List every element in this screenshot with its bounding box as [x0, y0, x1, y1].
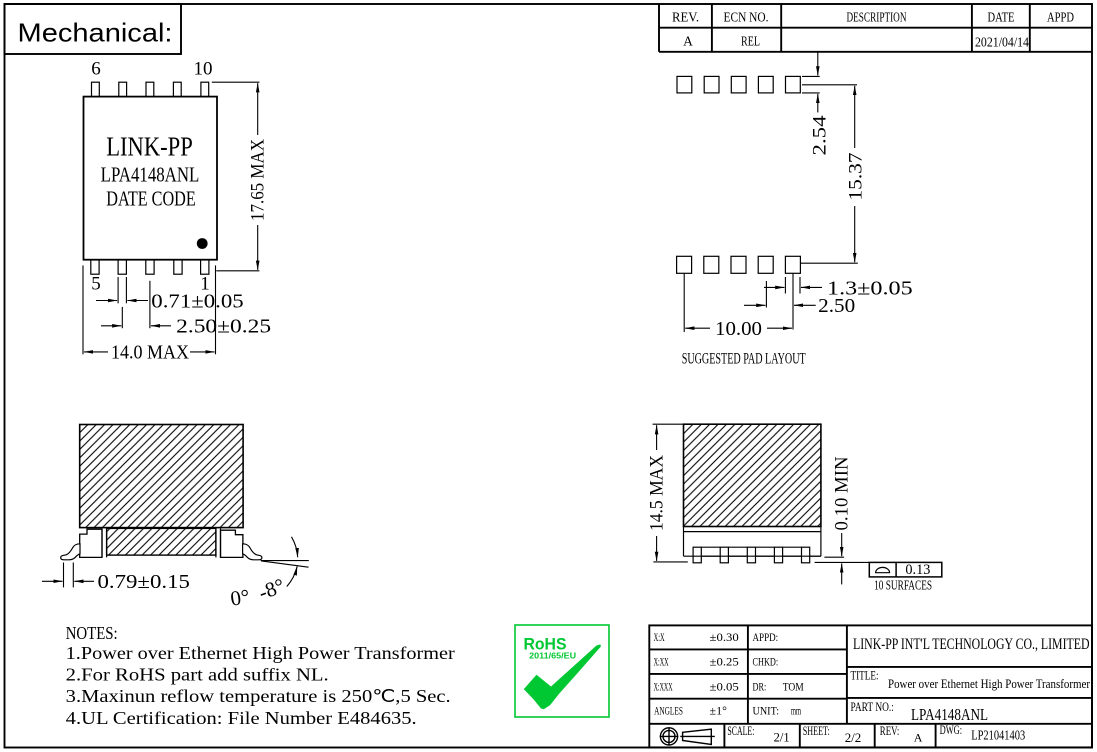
svg-text:LPA4148ANL: LPA4148ANL: [101, 163, 200, 187]
svg-text:14.0 MAX: 14.0 MAX: [111, 341, 189, 363]
svg-text:SCALE:: SCALE:: [727, 724, 754, 738]
svg-text:17.65 MAX: 17.65 MAX: [248, 139, 269, 221]
svg-text:2.50: 2.50: [818, 295, 855, 317]
svg-text:LINK-PP INT'L TECHNOLOGY CO.,: LINK-PP INT'L TECHNOLOGY CO., LIMITED: [853, 636, 1090, 653]
svg-text:2021/04/14: 2021/04/14: [975, 35, 1029, 50]
svg-text:LP21041403: LP21041403: [971, 728, 1025, 743]
svg-text:CHKD:: CHKD:: [753, 655, 779, 669]
svg-text:UNIT:: UNIT:: [753, 703, 780, 717]
svg-text:X:XX: X:XX: [654, 655, 669, 669]
svg-text:10: 10: [194, 59, 213, 80]
svg-text:DATE: DATE: [988, 10, 1015, 25]
svg-text:14.5 MAX: 14.5 MAX: [647, 455, 668, 531]
svg-text:TOM: TOM: [783, 680, 804, 694]
svg-text:5: 5: [91, 274, 101, 295]
svg-text:±0.05: ±0.05: [710, 680, 739, 694]
svg-text:2/1: 2/1: [774, 729, 790, 744]
svg-text:±1°: ±1°: [710, 703, 728, 717]
svg-text:SUGGESTED PAD LAYOUT: SUGGESTED PAD LAYOUT: [682, 351, 806, 368]
svg-text:DR:: DR:: [753, 680, 767, 694]
svg-text:0.79±0.15: 0.79±0.15: [98, 571, 190, 593]
svg-text:2.50±0.25: 2.50±0.25: [176, 316, 271, 338]
svg-text:2011/65/EU: 2011/65/EU: [529, 651, 576, 661]
svg-text:2/2: 2/2: [845, 730, 862, 745]
svg-text:APPD:: APPD:: [753, 630, 779, 644]
svg-text:NOTES:: NOTES:: [66, 623, 118, 643]
svg-text:X:X: X:X: [654, 630, 665, 644]
svg-text:X:XXX: X:XXX: [654, 680, 673, 694]
svg-text:10.00: 10.00: [715, 318, 762, 340]
svg-text:mm: mm: [791, 703, 801, 717]
svg-text:LINK-PP: LINK-PP: [106, 131, 193, 161]
svg-text:APPD: APPD: [1047, 10, 1074, 25]
svg-text:Power over Ethernet High Power: Power over Ethernet High Power Transform…: [888, 677, 1091, 691]
svg-text:15.37: 15.37: [846, 153, 867, 201]
svg-text:6: 6: [91, 59, 101, 80]
svg-text:4.UL Certification: File Numbe: 4.UL Certification: File Number E484635.: [66, 708, 417, 728]
svg-text:REV:: REV:: [880, 724, 900, 738]
svg-text:±0.25: ±0.25: [710, 655, 739, 669]
svg-text:SHEET:: SHEET:: [803, 724, 830, 738]
svg-text:A: A: [683, 34, 693, 49]
svg-text:1.Power over Ethernet High Pow: 1.Power over Ethernet High Power Transfo…: [66, 643, 455, 663]
svg-text:PART NO.:: PART NO.:: [851, 700, 894, 714]
svg-text:0°: 0°: [229, 584, 251, 610]
svg-text:TITLE:: TITLE:: [851, 668, 879, 682]
svg-text:REV.: REV.: [672, 10, 699, 25]
svg-text:0.10 MIN: 0.10 MIN: [832, 456, 853, 530]
svg-text:DESCRIPTION: DESCRIPTION: [847, 10, 907, 25]
svg-text:A: A: [914, 731, 923, 745]
svg-text:3.Maxinun reflow temperature i: 3.Maxinun reflow temperature is 250℃,5 S…: [66, 686, 451, 706]
svg-text:DATE CODE: DATE CODE: [106, 187, 195, 211]
svg-text:±0.30: ±0.30: [710, 630, 739, 644]
svg-text:2.For RoHS part add suffix NL.: 2.For RoHS part add suffix NL.: [66, 665, 329, 685]
svg-text:ANGLES: ANGLES: [654, 703, 683, 717]
svg-text:LPA4148ANL: LPA4148ANL: [911, 705, 988, 724]
svg-text:DWG:: DWG:: [940, 723, 963, 737]
svg-text:REL: REL: [741, 34, 760, 49]
svg-text:Mechanical:: Mechanical:: [18, 17, 173, 47]
svg-text:0.13: 0.13: [905, 562, 930, 578]
svg-text:ECN NO.: ECN NO.: [724, 10, 769, 25]
svg-text:0.71±0.05: 0.71±0.05: [151, 290, 243, 312]
svg-text:2.54: 2.54: [810, 115, 831, 156]
svg-text:10 SURFACES: 10 SURFACES: [874, 577, 932, 592]
